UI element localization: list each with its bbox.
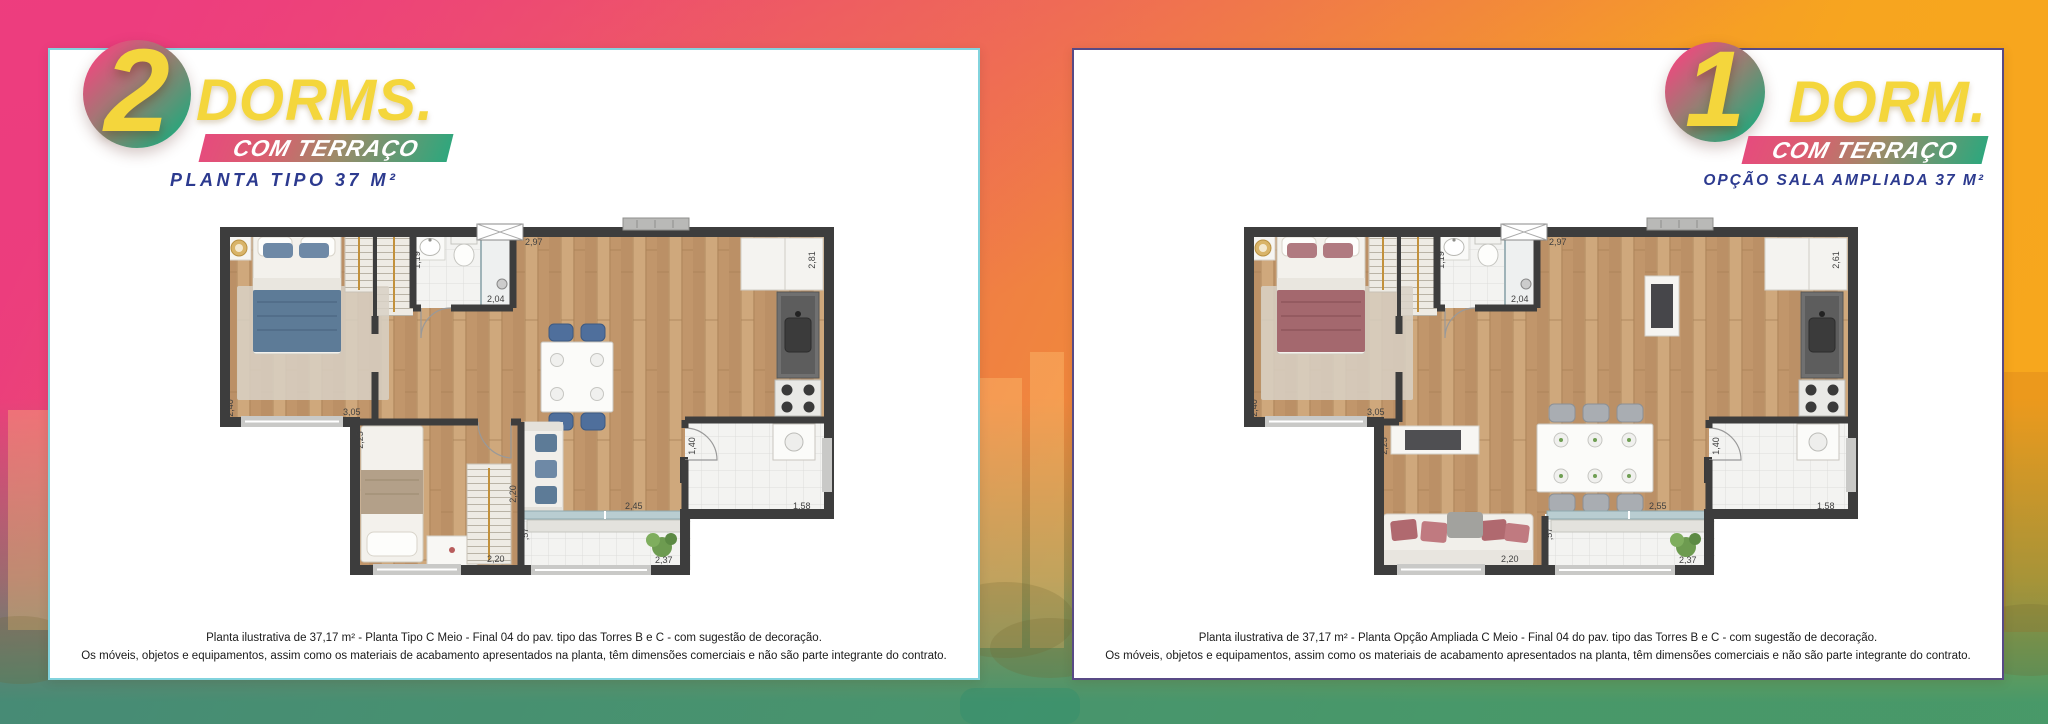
- dim-service-depth: 1,40: [687, 437, 697, 455]
- dim-bedroom2-depth: 2,25: [355, 431, 365, 449]
- dim-service-depth: 1,40: [1711, 437, 1721, 455]
- dim-sideboard-wall: 2,25: [1379, 437, 1389, 455]
- badge-title: DORMS.: [196, 72, 434, 130]
- dim-bedroom-length: 3,05: [343, 407, 361, 417]
- dim-terrace-depth: ,57: [520, 528, 530, 541]
- dim-sofa-width: 2,20: [1501, 554, 1519, 564]
- floor-plan-1-dorm: 2,40 3,05 1,19 2,04 2,97 2,61 2,25 2,20 …: [1249, 232, 1853, 572]
- dim-bath-width: 1,19: [1436, 251, 1446, 269]
- badge-ribbon: COM TERRAÇO: [1742, 136, 1989, 164]
- disclaimer-line-2: Os móveis, objetos e equipamentos, assim…: [78, 648, 950, 666]
- badge-circle: 2: [83, 40, 191, 148]
- badge-ribbon-label: COM TERRAÇO: [1769, 137, 1961, 164]
- badge-subtitle: PLANTA TIPO 37 M²: [170, 170, 399, 191]
- dim-terrace-width: 2,37: [655, 555, 673, 565]
- badge-ribbon: COM TERRAÇO: [199, 134, 454, 162]
- dim-bath-length: 2,04: [487, 294, 505, 304]
- disclaimer: Planta ilustrativa de 37,17 m² - Planta …: [1102, 630, 1974, 666]
- badge-2-dorms: 2 DORMS. COM TERRAÇO PLANTA TIPO 37 M²: [50, 50, 978, 230]
- badge-ribbon-label: COM TERRAÇO: [230, 135, 422, 162]
- dim-terrace-depth: ,57: [1544, 528, 1554, 541]
- badge-title: DORM.: [1789, 74, 1987, 132]
- card-2-dorms: 2 DORMS. COM TERRAÇO PLANTA TIPO 37 M²: [48, 48, 980, 680]
- dim-service-width: 1,58: [793, 501, 811, 511]
- dim-bedroom2-width: 2,20: [487, 554, 505, 564]
- dim-sofa-wall: 2,20: [508, 485, 518, 503]
- dim-service-width: 1,58: [1817, 501, 1835, 511]
- dim-living-top: 2,97: [1549, 237, 1567, 247]
- badge-number: 2: [104, 32, 170, 150]
- master-bedroom: [1251, 234, 1413, 400]
- dim-bath-width: 1,19: [412, 251, 422, 269]
- disclaimer-line-1: Planta ilustrativa de 37,17 m² - Planta …: [1102, 630, 1974, 648]
- dim-living-bottom: 2,55: [1649, 501, 1667, 511]
- card-1-dorm: 1 DORM. COM TERRAÇO OPÇÃO SALA AMPLIADA …: [1072, 48, 2004, 680]
- disclaimer-line-2: Os móveis, objetos e equipamentos, assim…: [1102, 648, 1974, 666]
- dim-kitchen-right: 2,61: [1831, 251, 1841, 269]
- floor-plan-2-dorms: 2,40 3,05 1,19 2,04 2,97 2,81 2,25 2,20 …: [225, 232, 829, 572]
- dim-kitchen-right: 2,81: [807, 251, 817, 269]
- master-bedroom: [227, 234, 389, 400]
- dim-terrace-width: 2,37: [1679, 555, 1697, 565]
- dim-bedroom-width: 2,40: [1249, 399, 1259, 417]
- dim-bedroom-width: 2,40: [225, 399, 235, 417]
- dim-living-top: 2,97: [525, 237, 543, 247]
- disclaimer: Planta ilustrativa de 37,17 m² - Planta …: [78, 630, 950, 666]
- badge-circle: 1: [1665, 42, 1765, 142]
- badge-number: 1: [1685, 35, 1745, 143]
- dim-bedroom-length: 3,05: [1367, 407, 1385, 417]
- badge-subtitle: OPÇÃO SALA AMPLIADA 37 M²: [1703, 172, 1985, 190]
- disclaimer-line-1: Planta ilustrativa de 37,17 m² - Planta …: [78, 630, 950, 648]
- dim-bath-length: 2,04: [1511, 294, 1529, 304]
- dim-living-bottom: 2,45: [625, 501, 643, 511]
- badge-1-dorm: 1 DORM. COM TERRAÇO OPÇÃO SALA AMPLIADA …: [1074, 50, 2002, 230]
